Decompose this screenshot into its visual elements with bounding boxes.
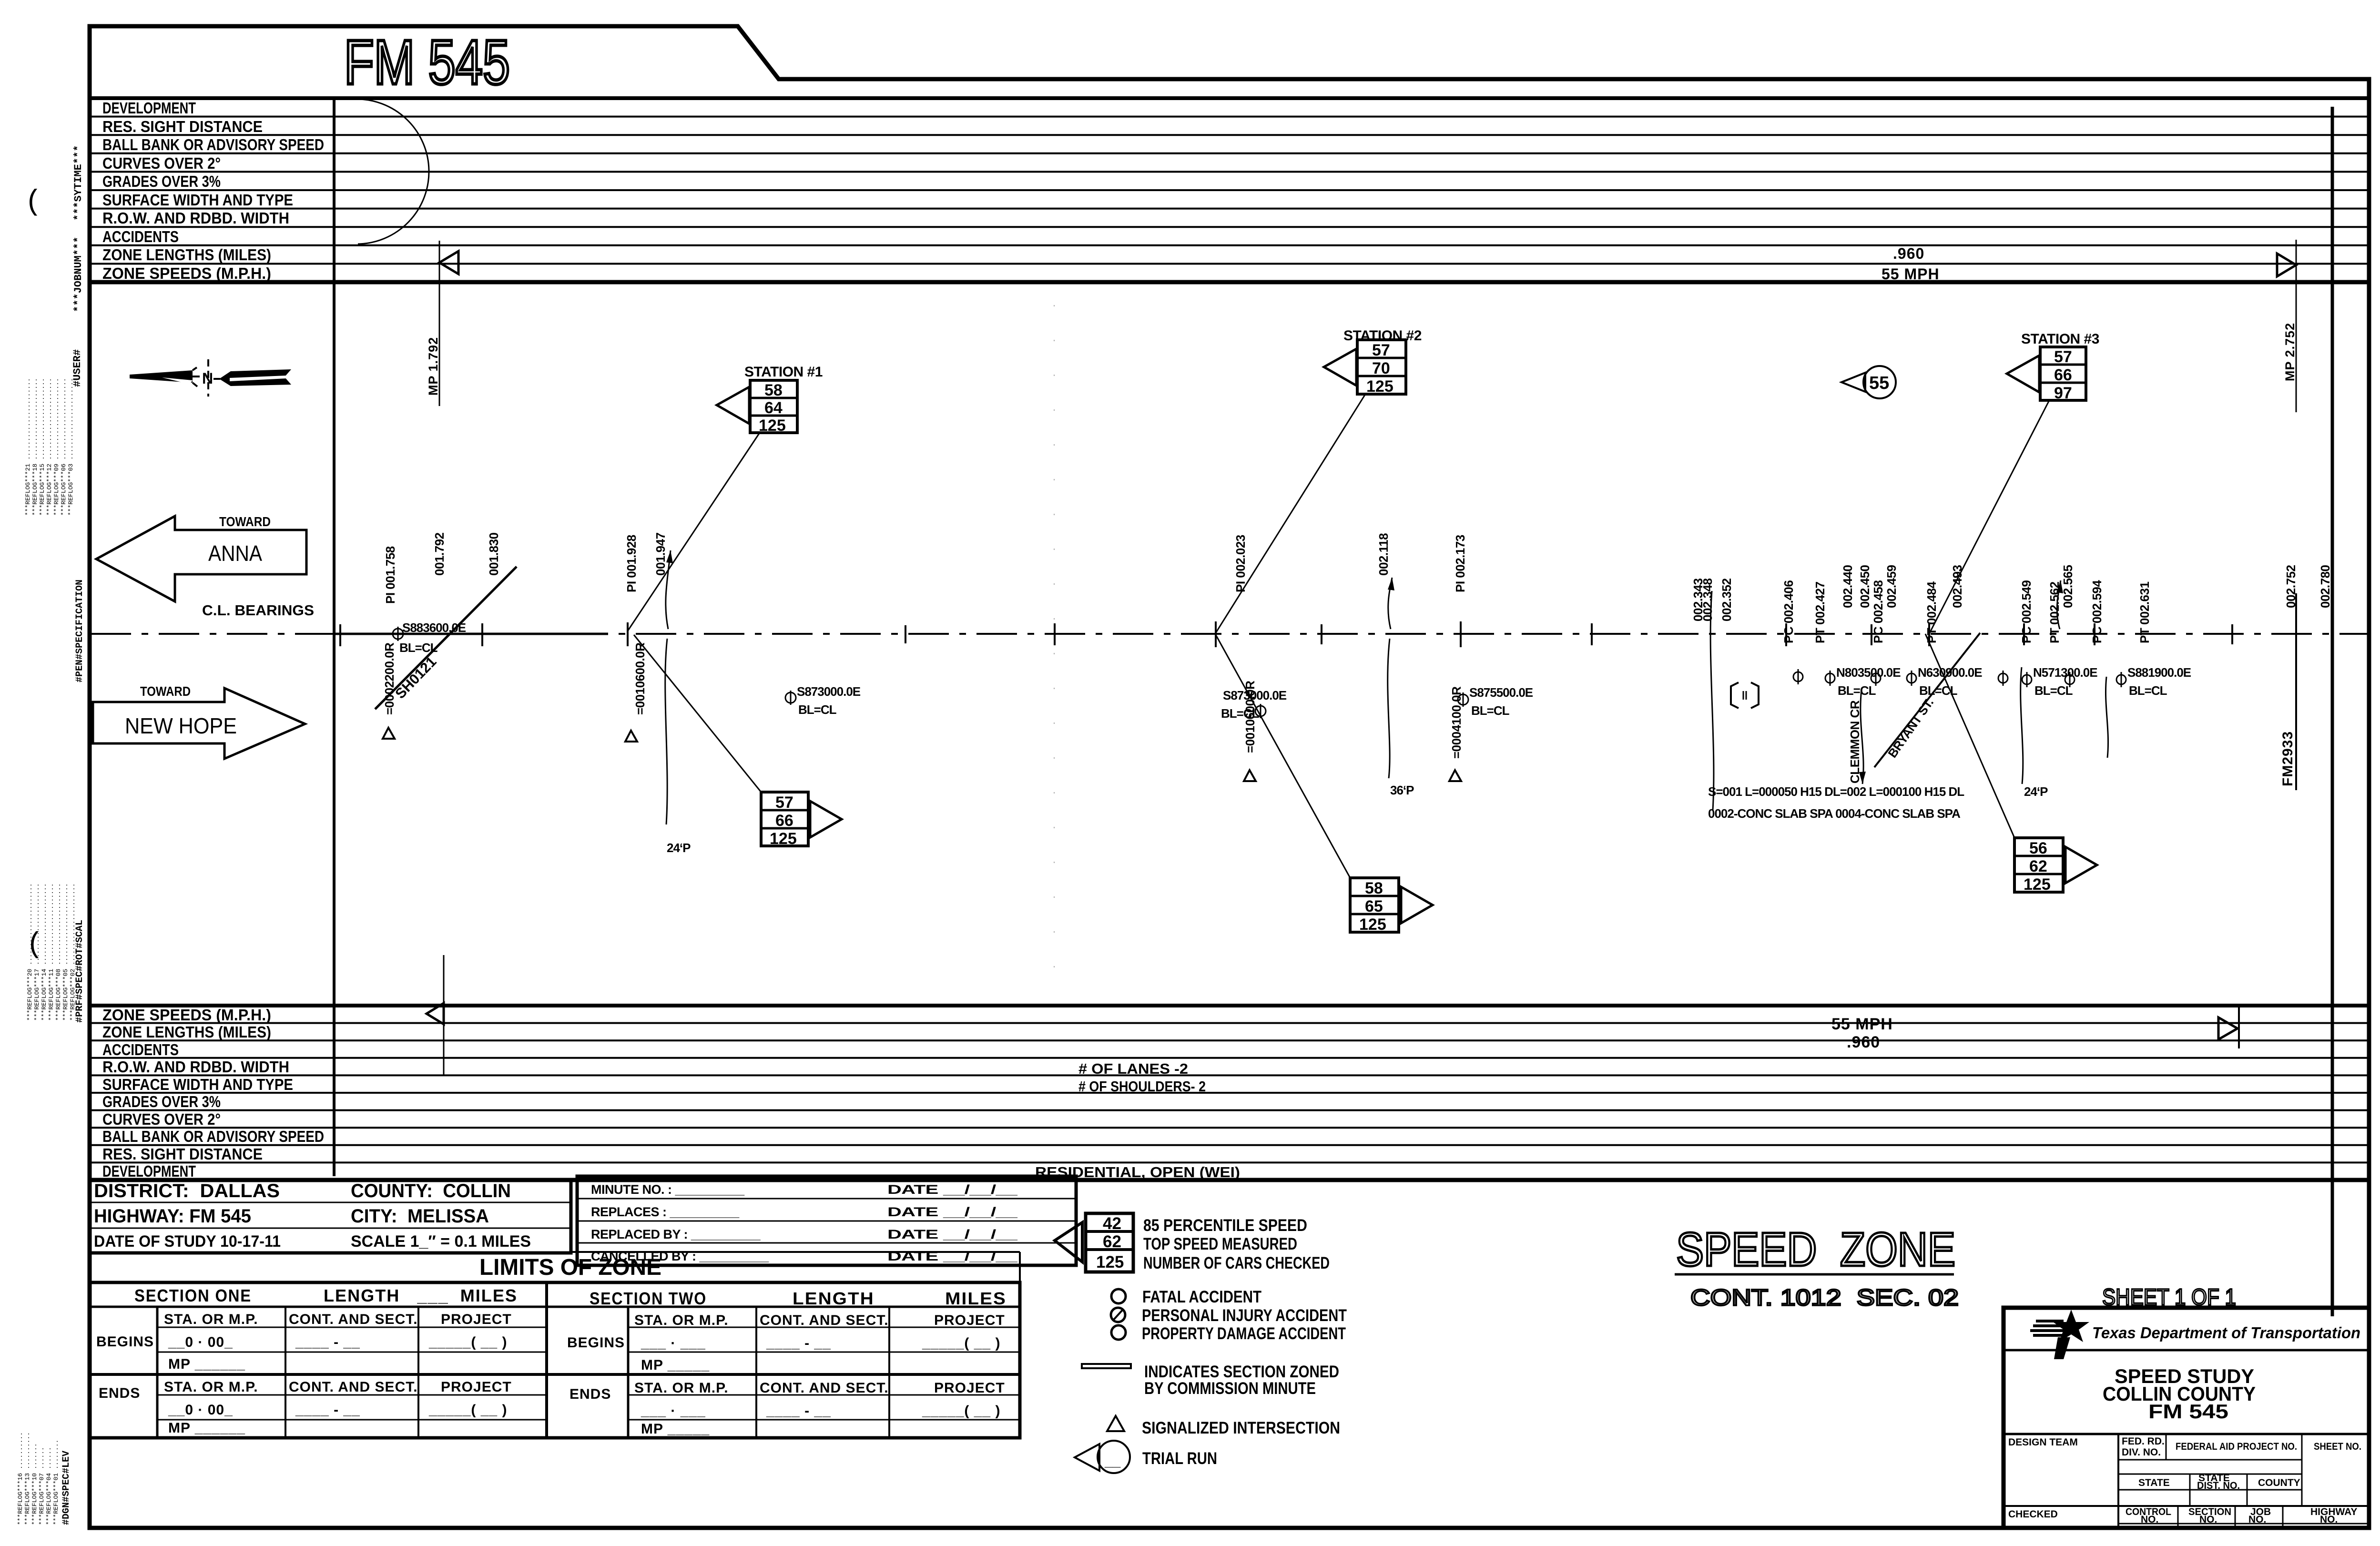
svg-text:MP _____: MP _____ <box>641 1421 710 1437</box>
svg-text:(: ( <box>25 186 42 219</box>
svg-text:***REFLOG***04 ......: ***REFLOG***04 ...... <box>45 1447 52 1525</box>
svg-text:NO.: NO. <box>2248 1514 2266 1525</box>
svg-text:CONT. AND SECT.: CONT. AND SECT. <box>760 1312 889 1328</box>
svg-text:62: 62 <box>2029 857 2047 875</box>
svg-text:__0 · 00_: __0 · 00_ <box>168 1334 233 1350</box>
svg-text:GRADES OVER 3%: GRADES OVER 3% <box>102 173 221 190</box>
svg-text:REPLACES : __________: REPLACES : __________ <box>591 1205 740 1219</box>
svg-text:PC 002.549: PC 002.549 <box>2019 580 2034 643</box>
svg-text:=0004100.0R: =0004100.0R <box>1449 686 1464 759</box>
svg-text:66: 66 <box>2054 366 2072 384</box>
svg-text:PROPERTY DAMAGE ACCIDENT: PROPERTY DAMAGE ACCIDENT <box>1142 1324 1346 1343</box>
svg-text:DEVELOPMENT: DEVELOPMENT <box>102 1162 196 1180</box>
svg-text:BY COMMISSION MINUTE: BY COMMISSION MINUTE <box>1144 1379 1316 1398</box>
svg-text:FM2933: FM2933 <box>2280 731 2296 786</box>
svg-text:BL=CL: BL=CL <box>399 641 438 655</box>
svg-text:____ - __: ____ - __ <box>295 1402 360 1418</box>
svg-text:PROJECT: PROJECT <box>441 1312 512 1327</box>
svg-text:____ - __: ____ - __ <box>766 1335 831 1351</box>
svg-text:58: 58 <box>1365 879 1383 897</box>
svg-text:CONT. AND SECT.: CONT. AND SECT. <box>760 1380 889 1396</box>
svg-text:=0002200.0R: =0002200.0R <box>382 642 397 715</box>
svg-text:125: 125 <box>1096 1253 1124 1271</box>
svg-text:PERSONAL INJURY ACCIDENT: PERSONAL INJURY ACCIDENT <box>1142 1306 1347 1325</box>
svg-text:SURFACE WIDTH AND TYPE: SURFACE WIDTH AND TYPE <box>102 191 293 209</box>
svg-text:CONT. AND SECT.: CONT. AND SECT. <box>289 1379 418 1395</box>
svg-text:INDICATES SECTION ZONED: INDICATES SECTION ZONED <box>1144 1363 1339 1381</box>
svg-text:PC 002.406: PC 002.406 <box>1781 580 1796 643</box>
svg-text:#PRF#SPEC#ROT#SCAL: #PRF#SPEC#ROT#SCAL <box>74 920 85 1023</box>
svg-text:***REFLOG***18 ...............: ***REFLOG***18 ...................... <box>31 378 39 516</box>
svg-text:#DGN#SPEC#LEV: #DGN#SPEC#LEV <box>61 1451 72 1525</box>
svg-text:BALL BANK OR ADVISORY SPEED: BALL BANK OR ADVISORY SPEED <box>102 1128 324 1145</box>
svg-text:N803500.0E: N803500.0E <box>1836 665 1901 680</box>
svg-text:SURFACE WIDTH AND TYPE: SURFACE WIDTH AND TYPE <box>102 1076 293 1093</box>
svg-text:NO.: NO. <box>2320 1514 2338 1525</box>
svg-text:002.352: 002.352 <box>1719 578 1734 621</box>
svg-text:__0 · 00_: __0 · 00_ <box>168 1402 233 1418</box>
svg-text:ZONE LENGTHS (MILES): ZONE LENGTHS (MILES) <box>102 1023 271 1041</box>
svg-text:002.459: 002.459 <box>1884 565 1899 608</box>
svg-text:(: ( <box>26 929 43 961</box>
svg-text:125: 125 <box>2024 875 2051 894</box>
svg-text:PI 002.023: PI 002.023 <box>1233 535 1248 592</box>
svg-text:COUNTY: COLLIN: COUNTY: COLLIN <box>351 1180 511 1201</box>
svg-text:BEGINS: BEGINS <box>567 1335 625 1351</box>
svg-text:FEDERAL AID PROJECT NO.: FEDERAL AID PROJECT NO. <box>2176 1441 2297 1452</box>
svg-text:125: 125 <box>759 417 786 435</box>
svg-text:DATE __/__/__: DATE __/__/__ <box>887 1227 1018 1241</box>
svg-text:BEGINS: BEGINS <box>96 1334 154 1350</box>
svg-text:C.L. BEARINGS: C.L. BEARINGS <box>202 602 314 619</box>
svg-text:36‘P: 36‘P <box>1390 783 1414 797</box>
svg-text:002.450: 002.450 <box>1858 565 1872 608</box>
svg-text:24‘P: 24‘P <box>2024 784 2048 799</box>
svg-text:ZONE SPEEDS (M.P.H.): ZONE SPEEDS (M.P.H.) <box>102 264 271 282</box>
svg-text:CURVES OVER 2°: CURVES OVER 2° <box>102 1110 221 1128</box>
svg-text:CONT. 1012 SEC. 02: CONT. 1012 SEC. 02 <box>1690 1285 1959 1311</box>
svg-text:ZONE LENGTHS (MILES): ZONE LENGTHS (MILES) <box>102 246 271 264</box>
svg-text:#PEN#SPECIFICATION: #PEN#SPECIFICATION <box>74 580 85 682</box>
svg-text:56: 56 <box>2029 839 2047 857</box>
svg-text:HIGHWAY: FM 545: HIGHWAY: FM 545 <box>94 1206 251 1227</box>
svg-text:002.348: 002.348 <box>1700 578 1715 621</box>
svg-text:FATAL ACCIDENT: FATAL ACCIDENT <box>1142 1288 1261 1306</box>
svg-text:R.O.W. AND RDBD. WIDTH: R.O.W. AND RDBD. WIDTH <box>102 209 289 227</box>
svg-text:002.565: 002.565 <box>2061 565 2075 608</box>
svg-text:***REFLOG***15 ...............: ***REFLOG***15 ...................... <box>39 378 46 516</box>
svg-text:___ · ___: ___ · ___ <box>641 1335 706 1351</box>
svg-text:.960: .960 <box>1893 245 1924 262</box>
svg-text:S881900.0E: S881900.0E <box>2127 665 2191 680</box>
svg-text:001.947: 001.947 <box>653 532 668 576</box>
svg-text:***REFLOG***07 ......: ***REFLOG***07 ...... <box>38 1447 45 1525</box>
svg-text:FED. RD.: FED. RD. <box>2122 1436 2165 1447</box>
svg-text:=0010600.0R: =0010600.0R <box>633 642 647 715</box>
svg-text:___ · ___: ___ · ___ <box>641 1403 706 1419</box>
svg-text:***JOBNUM***: ***JOBNUM*** <box>72 237 84 312</box>
svg-text:TOWARD: TOWARD <box>140 684 191 699</box>
svg-text:125: 125 <box>770 830 797 848</box>
svg-text:MP 2.752: MP 2.752 <box>2283 323 2297 381</box>
svg-text:***REFLOG***21 ...............: ***REFLOG***21 ...................... <box>24 378 31 516</box>
svg-text:=0010600.0R: =0010600.0R <box>1243 681 1257 753</box>
svg-text:MP 1.792: MP 1.792 <box>426 337 440 396</box>
svg-text:SPEED ZONE: SPEED ZONE <box>1676 1223 1955 1276</box>
svg-text:STA. OR M.P.: STA. OR M.P. <box>164 1312 258 1327</box>
svg-text:RES. SIGHT DISTANCE: RES. SIGHT DISTANCE <box>102 118 263 135</box>
svg-text:BALL BANK OR ADVISORY SPEED: BALL BANK OR ADVISORY SPEED <box>102 136 324 153</box>
svg-text:SIGNALIZED INTERSECTION: SIGNALIZED INTERSECTION <box>1142 1419 1340 1437</box>
svg-text:65: 65 <box>1365 897 1383 915</box>
svg-text:_____( __ ): _____( __ ) <box>428 1334 507 1350</box>
svg-text:N571300.0E: N571300.0E <box>2033 665 2097 680</box>
svg-text:***REFLOG***08 ...............: ***REFLOG***08 ...................... <box>55 883 62 1021</box>
svg-text:TOP SPEED MEASURED: TOP SPEED MEASURED <box>1143 1235 1297 1253</box>
svg-text:CONT. AND SECT.: CONT. AND SECT. <box>289 1312 418 1327</box>
svg-text:TOWARD: TOWARD <box>219 514 271 529</box>
svg-text:002.440: 002.440 <box>1841 565 1855 608</box>
svg-text:62: 62 <box>1103 1232 1121 1251</box>
svg-text:DATE OF STUDY 10-17-11: DATE OF STUDY 10-17-11 <box>94 1232 281 1251</box>
svg-text:***REFLOG***10 .......: ***REFLOG***10 ....... <box>31 1443 38 1525</box>
svg-text:PI 001.758: PI 001.758 <box>383 546 397 604</box>
svg-text:DATE __/__/__: DATE __/__/__ <box>887 1182 1018 1197</box>
svg-text:STA. OR M.P.: STA. OR M.P. <box>164 1379 258 1395</box>
svg-text:ACCIDENTS: ACCIDENTS <box>102 1041 179 1058</box>
svg-text:RESIDENTIAL, OPEN (WEI): RESIDENTIAL, OPEN (WEI) <box>1035 1164 1240 1180</box>
svg-text:BL=CL: BL=CL <box>2129 683 2167 698</box>
svg-text:REPLACED BY : __________: REPLACED BY : __________ <box>591 1227 761 1241</box>
svg-text:DISTRICT: DALLAS: DISTRICT: DALLAS <box>94 1180 280 1201</box>
svg-text:***REFLOG***01 ........: ***REFLOG***01 ........ <box>52 1440 60 1525</box>
svg-text:DEVELOPMENT: DEVELOPMENT <box>102 99 196 117</box>
svg-text:85 PERCENTILE SPEED: 85 PERCENTILE SPEED <box>1143 1216 1307 1235</box>
svg-text:57: 57 <box>2054 348 2072 366</box>
svg-text:125: 125 <box>1366 377 1393 396</box>
svg-text:ACCIDENTS: ACCIDENTS <box>102 228 179 245</box>
svg-text:ENDS: ENDS <box>99 1385 140 1401</box>
svg-text:***REFLOG***16 ..........: ***REFLOG***16 .......... <box>17 1432 24 1525</box>
svg-text:***REFLOG***11 ...............: ***REFLOG***11 ...................... <box>48 883 55 1021</box>
svg-text:SCALE 1_″ = 0.1 MILES: SCALE 1_″ = 0.1 MILES <box>351 1232 531 1251</box>
svg-text:PT 002.484: PT 002.484 <box>1924 581 1939 643</box>
svg-text:002.780: 002.780 <box>2318 565 2332 608</box>
svg-text:LIMITS OF ZONE: LIMITS OF ZONE <box>479 1255 661 1280</box>
svg-text:COUNTY: COUNTY <box>2258 1477 2300 1488</box>
svg-text:BL=CL: BL=CL <box>1838 683 1876 698</box>
svg-text:55: 55 <box>1869 373 1889 393</box>
svg-text:S875500.0E: S875500.0E <box>1469 685 1533 700</box>
svg-text:***REFLOG***03 ...............: ***REFLOG***03 ...................... <box>67 378 74 516</box>
svg-text:BL=CL: BL=CL <box>1471 703 1510 718</box>
svg-text:GRADES OVER 3%: GRADES OVER 3% <box>102 1093 221 1110</box>
svg-text:SECTION ONE: SECTION ONE <box>134 1286 252 1305</box>
svg-text:***REFLOG***12 ...............: ***REFLOG***12 ...................... <box>46 378 53 516</box>
svg-text:R.O.W. AND RDBD. WIDTH: R.O.W. AND RDBD. WIDTH <box>102 1058 289 1076</box>
svg-text:001.792: 001.792 <box>432 532 447 576</box>
svg-text:***REFLOG***09 ...............: ***REFLOG***09 ...................... <box>53 378 60 516</box>
svg-text:PI 001.928: PI 001.928 <box>624 535 639 592</box>
svg-text:***REFLOG***06 ...............: ***REFLOG***06 ...................... <box>60 378 67 516</box>
svg-text:55 MPH: 55 MPH <box>1882 265 1940 283</box>
svg-text:002.118: 002.118 <box>1376 533 1391 576</box>
svg-text:PROJECT: PROJECT <box>934 1380 1005 1396</box>
svg-text:STATE: STATE <box>2138 1477 2170 1488</box>
svg-text:DATE __/__/__: DATE __/__/__ <box>887 1205 1018 1219</box>
svg-text:Texas Department of Transporta: Texas Department of Transportation <box>2092 1324 2360 1342</box>
svg-text:ANNA: ANNA <box>208 541 262 566</box>
svg-text:58: 58 <box>764 381 783 399</box>
svg-text:NO.: NO. <box>2199 1514 2217 1525</box>
svg-text:____ - __: ____ - __ <box>766 1403 831 1419</box>
svg-text:DIV. NO.: DIV. NO. <box>2122 1447 2161 1458</box>
svg-text:***REFLOG***05 ...............: ***REFLOG***05 ...................... <box>62 883 69 1021</box>
svg-text:ENDS: ENDS <box>570 1386 611 1402</box>
svg-text:S873000.0E: S873000.0E <box>797 684 861 699</box>
svg-text:42: 42 <box>1103 1214 1121 1233</box>
svg-text:_____( __ ): _____( __ ) <box>922 1335 1000 1351</box>
svg-text:PC 002.458: PC 002.458 <box>1871 580 1885 643</box>
svg-text:MP ______: MP ______ <box>168 1356 245 1372</box>
svg-text:LENGTH ___ MILES: LENGTH ___ MILES <box>793 1289 1007 1308</box>
svg-text:57: 57 <box>775 793 793 812</box>
svg-text:DESIGN TEAM: DESIGN TEAM <box>2008 1437 2078 1448</box>
svg-text:002.493: 002.493 <box>1950 565 1964 608</box>
svg-text:70: 70 <box>1372 359 1390 377</box>
svg-text:SECTION TWO: SECTION TWO <box>590 1289 707 1308</box>
svg-text:001.830: 001.830 <box>487 532 501 576</box>
svg-text:***SYTIME***: ***SYTIME*** <box>72 145 84 221</box>
svg-text:PROJECT: PROJECT <box>441 1379 512 1395</box>
svg-text:RES. SIGHT DISTANCE: RES. SIGHT DISTANCE <box>102 1145 263 1163</box>
svg-text:PT 002.631: PT 002.631 <box>2137 582 2152 643</box>
svg-text:# OF SHOULDERS- 2: # OF SHOULDERS- 2 <box>1078 1078 1206 1095</box>
svg-text:64: 64 <box>764 399 783 417</box>
svg-text:ZONE SPEEDS (M.P.H.): ZONE SPEEDS (M.P.H.) <box>102 1006 271 1024</box>
svg-text:.960: .960 <box>1847 1033 1880 1051</box>
svg-text:CURVES OVER 2°: CURVES OVER 2° <box>102 154 221 172</box>
svg-text:PC 002.594: PC 002.594 <box>2090 580 2104 643</box>
svg-text:STATION #1: STATION #1 <box>744 364 823 380</box>
svg-text:CHECKED: CHECKED <box>2008 1509 2058 1520</box>
svg-text:_____( __ ): _____( __ ) <box>922 1403 1000 1419</box>
svg-text:CITY: MELISSA: CITY: MELISSA <box>351 1206 489 1227</box>
svg-text:__: __ <box>1104 1454 1121 1469</box>
svg-text:BL=CL: BL=CL <box>2034 683 2073 698</box>
svg-text:LENGTH ___ MILES: LENGTH ___ MILES <box>324 1286 518 1305</box>
svg-text:MINUTE NO. : __________: MINUTE NO. : __________ <box>591 1182 745 1197</box>
svg-text:STATION #3: STATION #3 <box>2021 331 2099 347</box>
svg-text:NEW HOPE: NEW HOPE <box>125 713 237 738</box>
svg-text:BL=CL: BL=CL <box>798 702 837 717</box>
svg-text:DIST. NO.: DIST. NO. <box>2197 1480 2240 1491</box>
svg-text:24‘P: 24‘P <box>667 841 691 855</box>
svg-text:57: 57 <box>1372 341 1390 359</box>
svg-text:S=001 L=000050 H15 DL=002 L=00: S=001 L=000050 H15 DL=002 L=000100 H15 D… <box>1708 784 1964 799</box>
svg-text:MP ______: MP ______ <box>168 1420 245 1436</box>
svg-text:PI 002.173: PI 002.173 <box>1453 535 1467 592</box>
svg-text:FM 545: FM 545 <box>344 27 510 97</box>
svg-text:STA. OR M.P.: STA. OR M.P. <box>634 1312 729 1328</box>
svg-text:66: 66 <box>775 812 793 830</box>
svg-text:NO.: NO. <box>2141 1514 2158 1525</box>
svg-text:97: 97 <box>2054 384 2072 402</box>
svg-text:***REFLOG***13 ..........: ***REFLOG***13 .......... <box>24 1432 31 1525</box>
svg-text:PROJECT: PROJECT <box>934 1312 1005 1328</box>
svg-text:TRIAL RUN: TRIAL RUN <box>1142 1449 1217 1468</box>
svg-text:_____( __ ): _____( __ ) <box>428 1402 507 1418</box>
svg-text:125: 125 <box>1359 915 1386 934</box>
svg-text:STA. OR M.P.: STA. OR M.P. <box>634 1380 729 1396</box>
svg-text:PT 002.427: PT 002.427 <box>1813 582 1827 643</box>
svg-text:55 MPH: 55 MPH <box>1831 1015 1893 1033</box>
svg-text:____ - __: ____ - __ <box>295 1334 360 1350</box>
svg-text:SHEET NO.: SHEET NO. <box>2314 1441 2361 1452</box>
svg-text:NUMBER OF CARS CHECKED: NUMBER OF CARS CHECKED <box>1143 1254 1330 1272</box>
svg-text:FM 545: FM 545 <box>2148 1400 2228 1423</box>
svg-text:0002-CONC SLAB SPA 0004-CONC: 0002-CONC SLAB SPA 0004-CONC SLAB SPA <box>1708 806 1961 821</box>
svg-text:# OF LANES -2: # OF LANES -2 <box>1078 1060 1188 1077</box>
svg-text:MP _____: MP _____ <box>641 1357 710 1373</box>
svg-text:S883600.0E: S883600.0E <box>402 620 466 635</box>
